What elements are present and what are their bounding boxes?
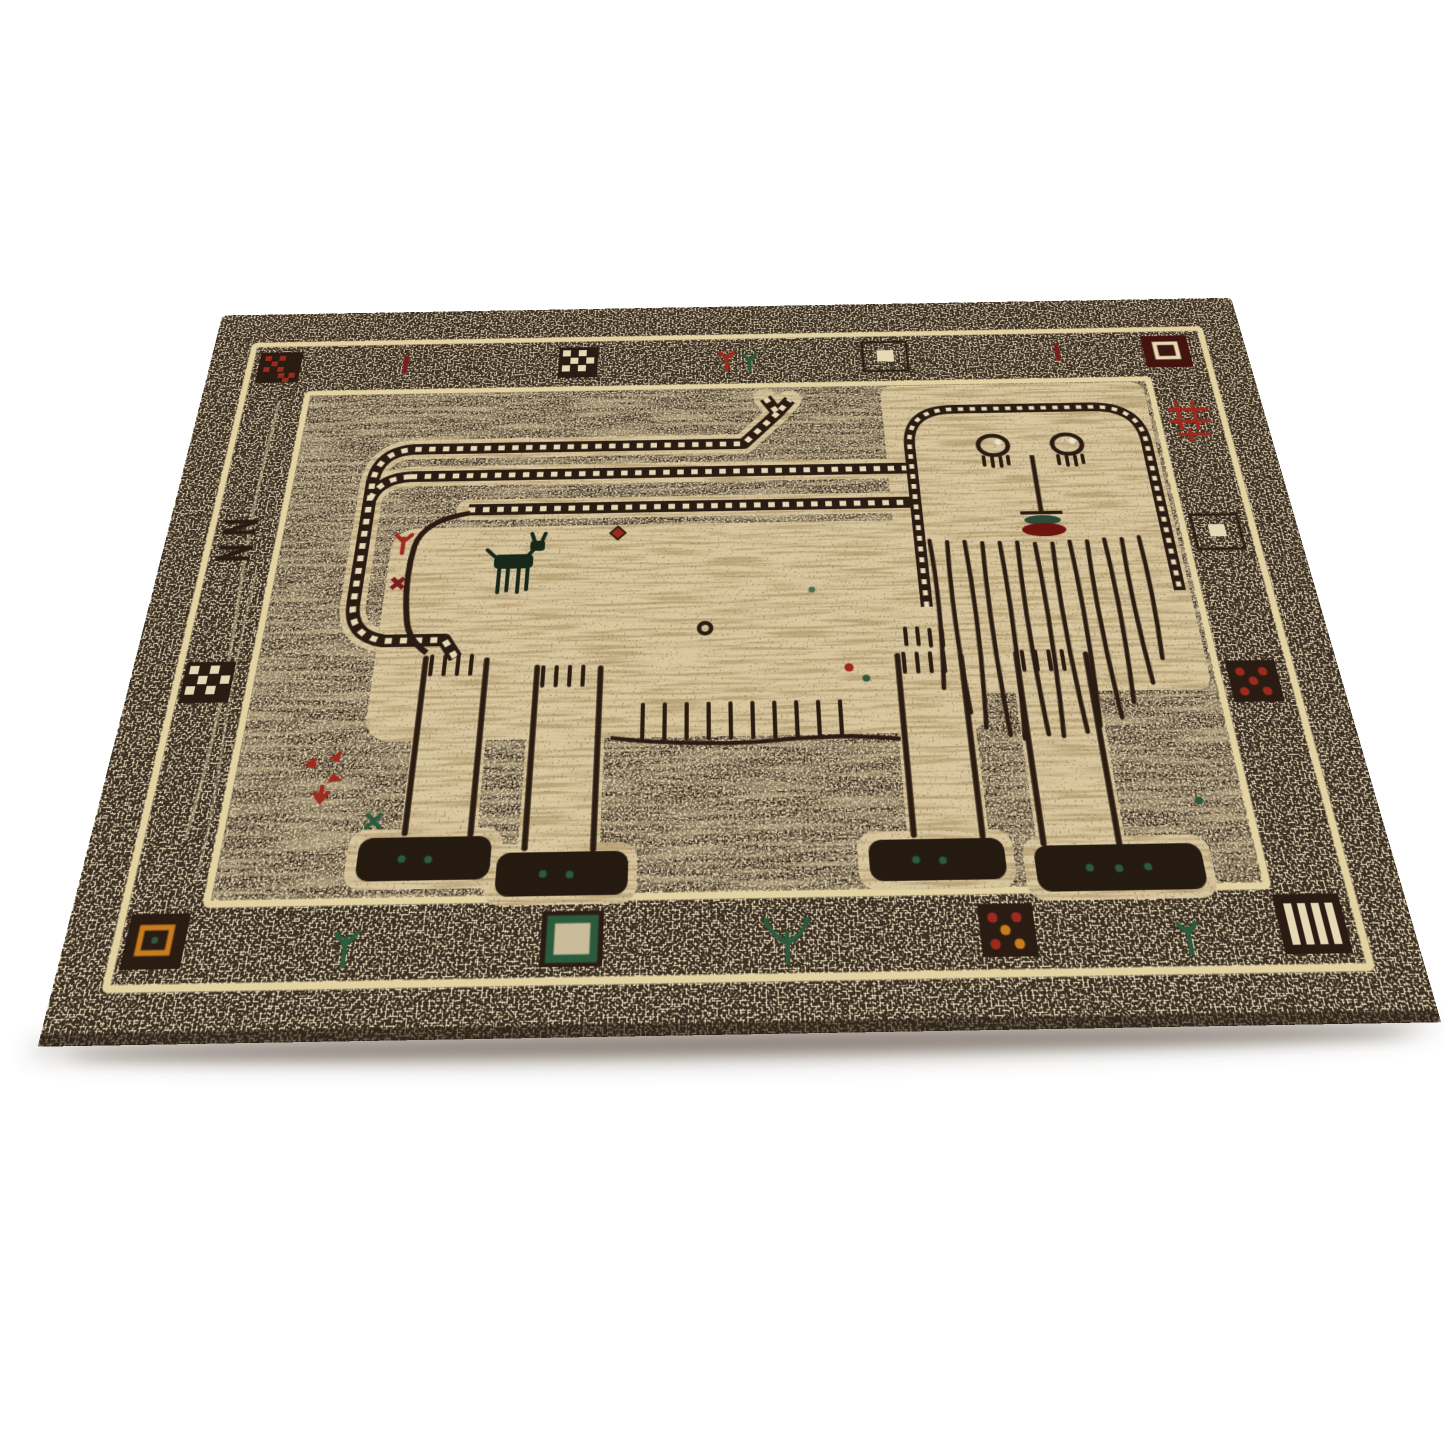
border-motif-green-frame-square xyxy=(539,911,604,968)
camera-tilt xyxy=(0,0,1445,1445)
border-motif-checkered-square-top xyxy=(558,347,599,378)
lion-foot-1 xyxy=(354,836,492,882)
photo-canvas xyxy=(0,0,1445,1445)
lion-foot-2 xyxy=(494,851,629,897)
border-motif-maroon-square xyxy=(1140,336,1194,368)
border-motif-checkered-square-left xyxy=(178,662,236,704)
border-motif-red-cross-square xyxy=(255,352,304,383)
lion-back-track xyxy=(469,502,914,510)
rug-photo xyxy=(38,298,1441,1047)
lion-foot-3 xyxy=(868,838,1008,882)
border-motif-red-dot-square-bottom xyxy=(977,903,1039,957)
rug-face xyxy=(38,298,1441,1047)
